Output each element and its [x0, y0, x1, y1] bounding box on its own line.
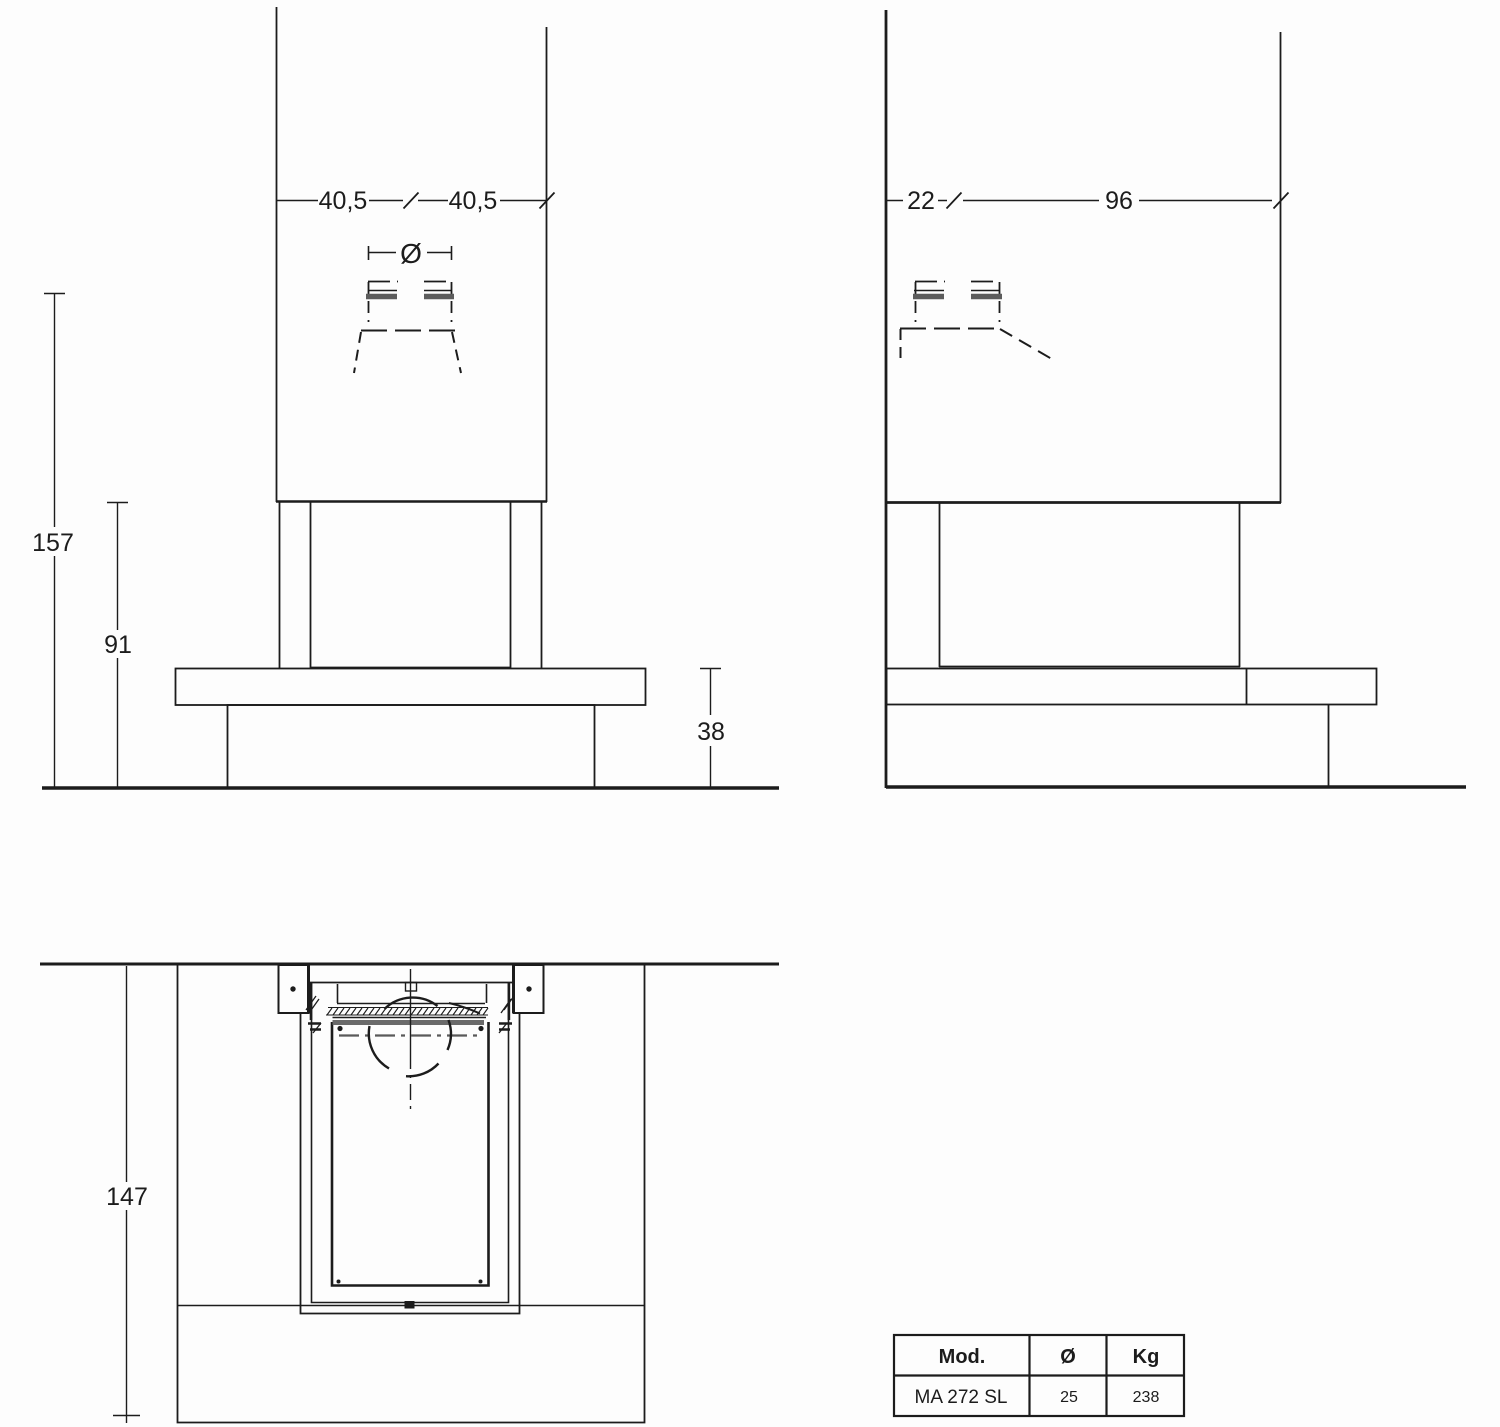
svg-text:Ø: Ø: [1060, 1346, 1076, 1368]
svg-text:147: 147: [106, 1183, 148, 1211]
svg-text:Mod.: Mod.: [939, 1346, 986, 1368]
svg-text:22: 22: [907, 187, 935, 215]
svg-text:40,5: 40,5: [449, 187, 498, 215]
svg-text:40,5: 40,5: [319, 187, 368, 215]
svg-text:Ø: Ø: [400, 238, 422, 269]
svg-text:38: 38: [697, 718, 725, 746]
svg-text:238: 238: [1133, 1389, 1160, 1406]
svg-text:Kg: Kg: [1133, 1346, 1160, 1368]
svg-text:91: 91: [104, 631, 132, 659]
svg-text:25: 25: [1060, 1389, 1078, 1406]
svg-text:157: 157: [32, 529, 74, 557]
svg-text:MA 272 SL: MA 272 SL: [915, 1387, 1008, 1408]
svg-text:96: 96: [1105, 187, 1133, 215]
